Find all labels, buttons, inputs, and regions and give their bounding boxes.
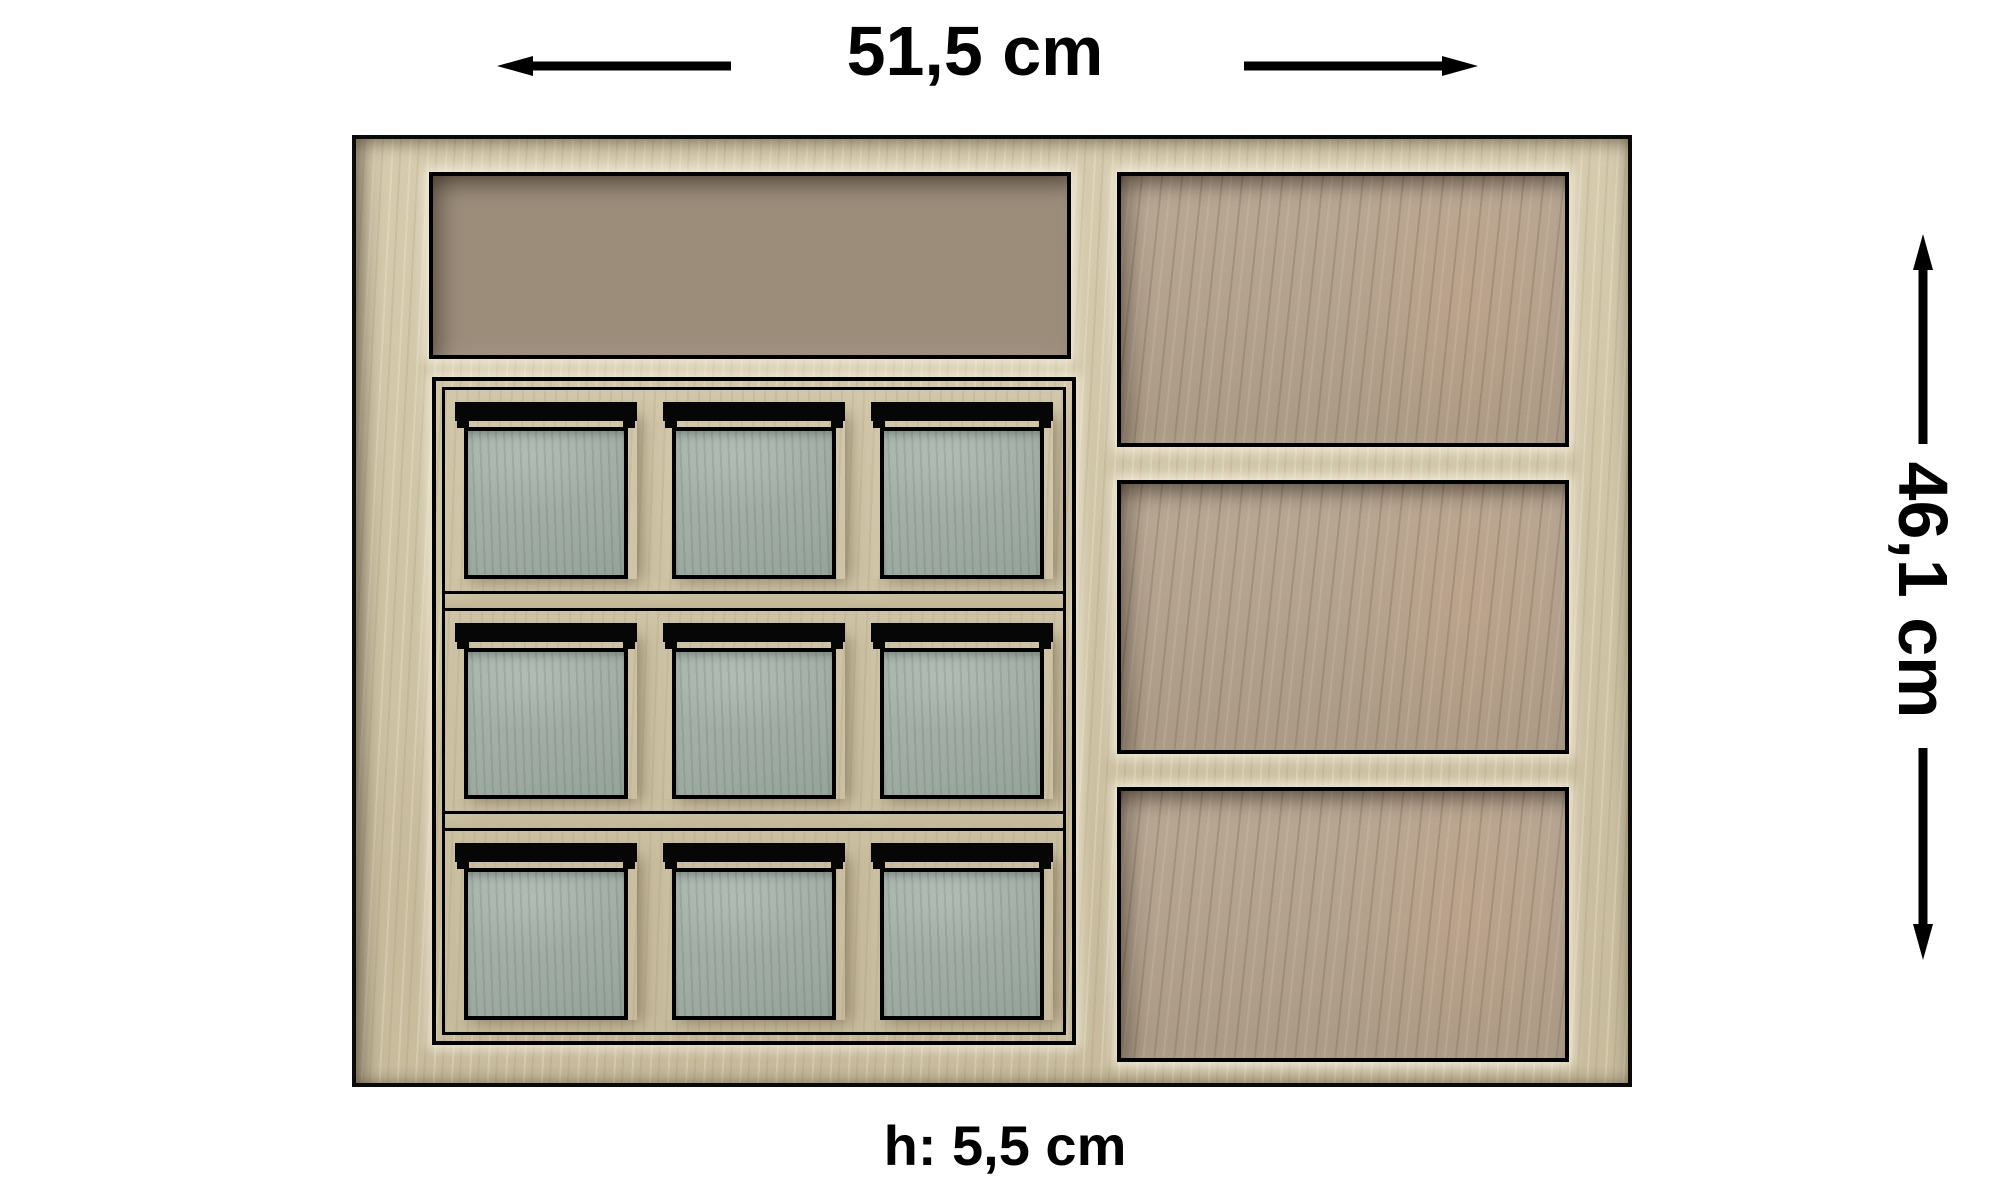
card-cell [871, 402, 1053, 579]
card-grid-interior [442, 387, 1066, 1035]
card-slot [455, 402, 637, 421]
right-compartment-3 [1117, 787, 1569, 1062]
product-dimension-image: 51,5 cm 46,1 cm h: 5,5 cm [0, 0, 2000, 1200]
card-cell [455, 623, 637, 800]
card-cell [663, 402, 845, 579]
card-panel [464, 427, 628, 579]
card-cell [455, 843, 637, 1020]
right-compartment-column [1117, 172, 1569, 1062]
card-slot [663, 402, 845, 421]
card-cell [871, 843, 1053, 1020]
card-panel [464, 648, 628, 800]
card-grid-row [445, 390, 1063, 591]
grid-row-divider [445, 591, 1063, 611]
card-panel [464, 868, 628, 1020]
card-panel [672, 868, 836, 1020]
grid-row-divider [445, 811, 1063, 831]
card-slot [455, 623, 637, 642]
card-cell [455, 402, 637, 579]
right-compartment-2 [1117, 480, 1569, 755]
card-grid-row [445, 831, 1063, 1032]
width-dimension-label: 51,5 cm [790, 16, 1160, 86]
width-arrow-left-icon [495, 55, 735, 77]
card-panel [672, 648, 836, 800]
right-compartment-1 [1117, 172, 1569, 447]
card-slot [663, 843, 845, 862]
card-panel [880, 648, 1044, 800]
width-arrow-right-icon [1240, 55, 1480, 77]
open-storage-compartment [429, 172, 1071, 359]
wooden-tray [352, 135, 1632, 1087]
card-slot [871, 623, 1053, 642]
card-cell [871, 623, 1053, 800]
card-panel [880, 868, 1044, 1020]
card-panel [880, 427, 1044, 579]
card-slot [871, 843, 1053, 862]
card-grid-section [432, 377, 1076, 1045]
depth-dimension-label: h: 5,5 cm [830, 1118, 1180, 1174]
card-cell [663, 623, 845, 800]
height-arrow-up-icon [1912, 232, 1934, 447]
height-dimension-label: 46,1 cm [1883, 450, 1963, 730]
height-arrow-down-icon [1912, 740, 1934, 962]
card-slot [871, 402, 1053, 421]
card-panel [672, 427, 836, 579]
card-grid-row [445, 611, 1063, 812]
card-slot [455, 843, 637, 862]
card-cell [663, 843, 845, 1020]
card-slot [663, 623, 845, 642]
